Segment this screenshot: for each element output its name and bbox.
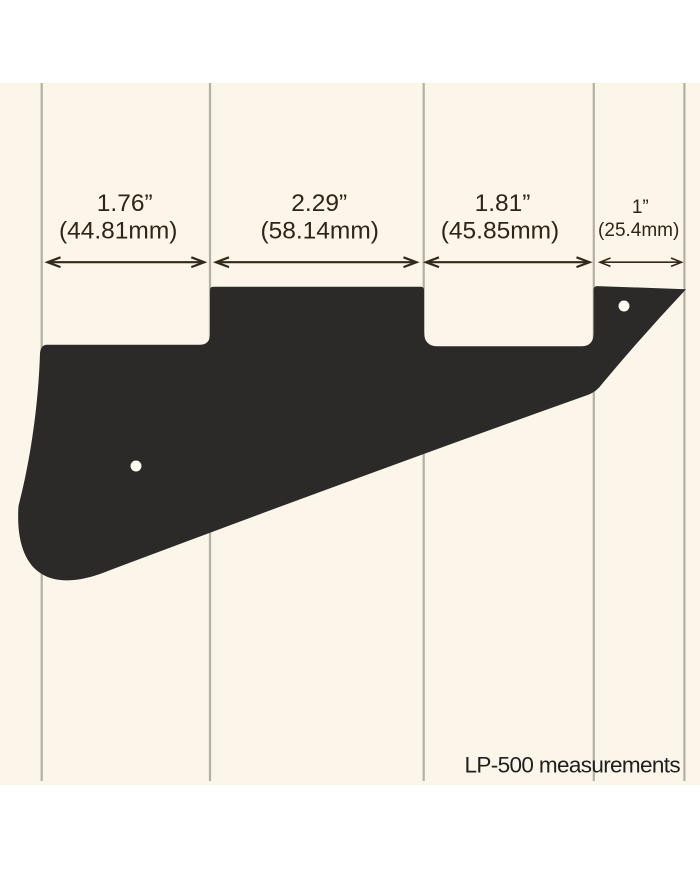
- svg-text:(58.14mm): (58.14mm): [260, 217, 378, 244]
- svg-text:(44.81mm): (44.81mm): [59, 217, 177, 244]
- svg-text:1”: 1”: [632, 197, 649, 218]
- svg-text:(45.85mm): (45.85mm): [441, 217, 559, 244]
- svg-text:1.81”: 1.81”: [475, 190, 531, 217]
- svg-text:LP-500 measurements: LP-500 measurements: [465, 752, 681, 777]
- svg-text:2.29”: 2.29”: [291, 190, 347, 217]
- svg-text:1.76”: 1.76”: [97, 190, 153, 217]
- svg-text:(25.4mm): (25.4mm): [598, 220, 679, 241]
